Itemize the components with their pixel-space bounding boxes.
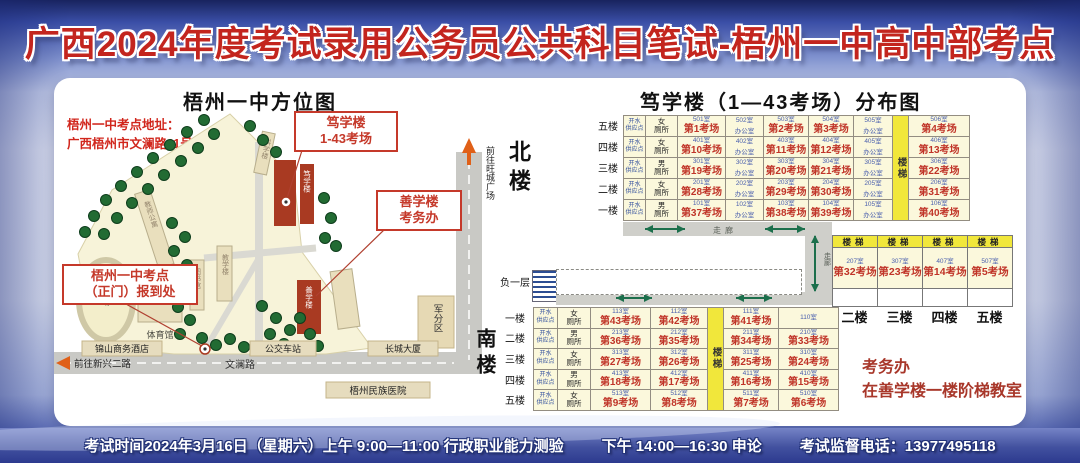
room-number: 513室 (612, 390, 629, 398)
poster: 广西2024年度考试录用公务员公共科目笔试-梧州一中高中部考点 梧州一中方位图 … (0, 0, 1080, 463)
water-line1: 开水 (625, 119, 643, 127)
water-supply-cell: 开水供应点 (624, 137, 645, 157)
floor-label: 一楼 (598, 199, 618, 220)
room-number: 503室 (777, 116, 794, 124)
water-line2: 供应点 (536, 380, 554, 388)
exam-room-label: 第6考场 (791, 398, 827, 410)
gym-label: 体育馆 (146, 329, 173, 340)
tree-icon (132, 167, 143, 178)
north-corridor: 走廊 (623, 222, 832, 236)
water-line1: 开水 (536, 310, 554, 318)
office-label: 办公室 (735, 209, 755, 219)
toilet-label: 厕所 (567, 338, 582, 346)
military-label: 军分区 (432, 304, 444, 333)
tree-icon (182, 127, 193, 138)
room-number: 310室 (800, 349, 817, 357)
middle-floor-labels: 二楼三楼四楼五楼 (832, 307, 1012, 326)
exam-room-label: 第4考场 (921, 124, 957, 136)
water-supply-label: 开水供应点 (536, 351, 554, 366)
exam-room-cell: 504室第3考场 (809, 116, 853, 136)
female-toilet-cell: 女厕所 (558, 390, 590, 410)
stairs-header: 楼梯 (833, 236, 877, 247)
exam-room-label: 第1考场 (684, 124, 720, 136)
toilet-label: 厕所 (654, 168, 669, 176)
floor-label: 二楼 (505, 328, 525, 349)
exam-room-cell: 501室第1考场 (678, 116, 725, 136)
exam-room-cell: 407室第14考场 (923, 248, 967, 288)
exam-room-cell: 212室第35考场 (651, 329, 707, 349)
male-toilet-cell: 男厕所 (558, 370, 590, 390)
office-label: 办公室 (735, 188, 755, 198)
exam-room-label: 第22考场 (918, 166, 959, 178)
exam-room-label: 第33考场 (788, 336, 829, 348)
floor-label: 一楼 (505, 307, 525, 328)
exam-room-cell: 403室第11考场 (764, 137, 808, 157)
exam-room-cell: 506室第4考场 (909, 116, 969, 136)
gate-callout-line1: 梧州一中考点 (68, 268, 192, 284)
exam-room-label: 第41考场 (730, 316, 771, 328)
room-number: 103室 (777, 200, 794, 208)
middle-floor-label: 三楼 (877, 307, 922, 326)
exam-room-label: 第21考场 (810, 166, 851, 178)
office-label: 办公室 (735, 146, 755, 156)
stairs-header: 楼梯 (923, 236, 967, 247)
exam-room-label: 第14考场 (923, 266, 966, 279)
room-number: 205室 (864, 180, 881, 188)
tree-icon (295, 313, 306, 324)
exam-room-label: 第16考场 (730, 377, 771, 389)
empty-cell (968, 289, 1012, 306)
tree-icon (271, 147, 282, 158)
kaowuban-note-line2: 在善学楼一楼阶梯教室 (862, 380, 1022, 404)
room-number: 403室 (777, 137, 794, 145)
water-supply-label: 开水供应点 (625, 140, 643, 155)
tree-icon (197, 333, 208, 344)
office-label: 办公室 (863, 167, 883, 177)
room-number: 113室 (612, 308, 629, 316)
water-supply-cell: 开水供应点 (534, 308, 557, 328)
room-number: 204室 (822, 179, 839, 187)
exam-room-cell: 412室第17考场 (651, 370, 707, 390)
exam-room-cell: 304室第21考场 (809, 158, 853, 178)
arrow-head (644, 294, 652, 302)
shanxue-callout: 善学楼 考务办 (376, 190, 462, 231)
duxue-callout: 笃学楼 1-43考场 (294, 111, 398, 152)
exam-room-cell: 312室第26考场 (651, 349, 707, 369)
water-line2: 供应点 (536, 359, 554, 367)
shanxue-building-label: 善学楼 (304, 285, 313, 310)
toilet-label: 厕所 (567, 380, 582, 388)
office-label: 办公室 (863, 209, 883, 219)
shanxue-callout-line1: 善学楼 (382, 194, 456, 210)
water-line2: 供应点 (536, 318, 554, 326)
exam-room-cell: 101室第37考场 (678, 200, 725, 220)
exam-room-cell: 401室第10考场 (678, 137, 725, 157)
exam-room-label: 第5考场 (971, 266, 1008, 279)
supervision-phone: 考试监督电话：13977495118 (800, 435, 996, 456)
water-line1: 开水 (625, 140, 643, 148)
content-card: 梧州一中方位图 梧州一中考点地址： 广西梧州市文澜路11号 运动场 教师公寓 (54, 78, 1026, 426)
tree-icon (320, 233, 331, 244)
room-number: 101室 (693, 200, 710, 208)
tree-icon (257, 301, 268, 312)
room-number: 305室 (864, 159, 881, 167)
office-cell: 302室办公室 (726, 158, 763, 178)
exam-room-cell: 406室第13考场 (909, 137, 969, 157)
arrow-head (811, 235, 819, 243)
exam-room-cell: 503室第2考场 (764, 116, 808, 136)
female-toilet-cell: 女厕所 (646, 179, 677, 199)
exam-room-label: 第25考场 (730, 357, 771, 369)
north-corridor-arrows: 走廊 (623, 222, 832, 236)
hospital-label: 梧州民族医院 (349, 385, 407, 397)
exam-room-cell: 111室第41考场 (724, 308, 778, 328)
water-line2: 供应点 (625, 126, 643, 134)
water-supply-cell: 开水供应点 (534, 390, 557, 410)
water-supply-cell: 开水供应点 (534, 349, 557, 369)
exam-room-label: 第3考场 (813, 124, 849, 136)
toilet-label: 厕所 (567, 318, 582, 326)
water-supply-label: 开水供应点 (625, 203, 643, 218)
tree-icon (101, 195, 112, 206)
exam-room-label: 第2考场 (768, 124, 804, 136)
exam-room-cell: 301室第19考场 (678, 158, 725, 178)
exam-room-label: 第28考场 (681, 187, 722, 199)
exam-room-label: 第12考场 (810, 145, 851, 157)
middle-floor-label: 四楼 (922, 307, 967, 326)
middle-floor-label: 五楼 (967, 307, 1012, 326)
to-xinxing-label: 前往新兴二路 (74, 358, 132, 370)
to-wangcheng-label: 前往旺城广场 (485, 145, 495, 201)
arrow-head (764, 294, 772, 302)
kaowuban-note-line1: 考务办 (862, 356, 1022, 380)
room-number: 311室 (743, 349, 760, 357)
tree-icon (176, 156, 187, 167)
exam-room-cell: 512室第8考场 (651, 390, 707, 410)
exam-room-cell: 307室第23考场 (878, 248, 922, 288)
arrow-head (677, 225, 685, 233)
hotel-label: 锦山商务酒店 (95, 343, 149, 354)
duxue-marker-dot (284, 200, 287, 203)
water-line1: 开水 (625, 182, 643, 190)
room-number: 110室 (800, 314, 817, 322)
water-line1: 开水 (625, 203, 643, 211)
room-number: 510室 (800, 390, 817, 398)
north-table: 楼梯开水供应点女厕所501室第1考场502室办公室503室第2考场504室第3考… (623, 115, 970, 221)
corridor-label: 走廊 (713, 225, 737, 235)
office-cell: 305室办公室 (854, 158, 892, 178)
exam-room-cell: 410室第15考场 (779, 370, 838, 390)
room-number: 401室 (693, 137, 710, 145)
floor-label: 四楼 (505, 369, 525, 390)
basement-stairs-icon (532, 270, 557, 302)
exam-room-cell: 510室第6考场 (779, 390, 838, 410)
water-supply-cell: 开水供应点 (624, 116, 645, 136)
water-line2: 供应点 (625, 168, 643, 176)
office-cell: 105室办公室 (854, 200, 892, 220)
office-cell: 205室办公室 (854, 179, 892, 199)
room-number: 504室 (822, 116, 839, 124)
room-number: 512室 (670, 390, 687, 398)
tree-icon (319, 193, 330, 204)
water-supply-label: 开水供应点 (536, 393, 554, 408)
duxue-callout-line2: 1-43考场 (300, 131, 392, 147)
tree-icon (209, 129, 220, 140)
tree-icon (331, 241, 342, 252)
room-number: 111室 (743, 308, 759, 316)
tree-icon (169, 246, 180, 257)
south-building-label: 南楼 (470, 328, 499, 380)
office-cell: 102室办公室 (726, 200, 763, 220)
office-label: 办公室 (863, 188, 883, 198)
exam-room-cell: 104室第39考场 (809, 200, 853, 220)
arrow-head (765, 225, 773, 233)
office-cell: 502室办公室 (726, 116, 763, 136)
room-number: 301室 (693, 158, 710, 166)
tree-icon (271, 313, 282, 324)
stairs-header: 楼梯 (968, 236, 1012, 247)
arrow-head (645, 225, 653, 233)
male-toilet-cell: 男厕所 (646, 200, 677, 220)
exam-room-cell: 306室第22考场 (909, 158, 969, 178)
room-number: 312室 (670, 349, 687, 357)
tree-icon (180, 232, 191, 243)
middle-table: 楼梯207室第32考场楼梯307室第23考场楼梯407室第14考场楼梯507室第… (832, 235, 1013, 307)
gate-marker-dot (203, 347, 206, 350)
water-line1: 开水 (536, 372, 554, 380)
room-number: 406室 (930, 137, 947, 145)
room-number: 306室 (930, 158, 947, 166)
exam-room-label: 第18考场 (600, 377, 641, 389)
arrow-head (797, 225, 805, 233)
room-number: 105室 (864, 201, 881, 209)
exam-room-cell: 513室第9考场 (591, 390, 650, 410)
exam-room-label: 第37考场 (681, 208, 722, 220)
exam-room-label: 第30考场 (810, 187, 851, 199)
exam-room-label: 第19考场 (681, 166, 722, 178)
bus-station-label: 公交车站 (265, 343, 301, 354)
tree-icon (239, 342, 250, 353)
toilet-label: 厕所 (654, 126, 669, 134)
room-number: 313室 (612, 349, 629, 357)
campus-map: 运动场 教师公寓 科学楼 教学楼 图书馆 体育馆 笃学楼 善学楼 (54, 98, 499, 426)
tree-icon (99, 229, 110, 240)
exam-time-info: 考试时间2024年3月16日（星期六）上午 9:00—11:00 行政职业能力测… (84, 435, 563, 456)
footer-bar: 考试时间2024年3月16日（星期六）上午 9:00—11:00 行政职业能力测… (0, 428, 1080, 463)
female-toilet-cell: 女厕所 (558, 308, 590, 328)
basement-hall-outline (556, 269, 802, 295)
stairs-column: 楼梯 (893, 116, 908, 220)
tree-icon (265, 329, 276, 340)
male-toilet-cell: 男厕所 (558, 329, 590, 349)
exam-room-label: 第39考场 (810, 208, 851, 220)
exam-room-label: 第32考场 (833, 266, 876, 279)
exam-room-label: 第34考场 (730, 336, 771, 348)
banner: 广西2024年度考试录用公务员公共科目笔试-梧州一中高中部考点 (0, 16, 1080, 67)
floor-label: 三楼 (505, 348, 525, 369)
toilet-label: 厕所 (567, 359, 582, 367)
room-number: 201室 (693, 179, 710, 187)
water-supply-label: 开水供应点 (625, 119, 643, 134)
water-supply-cell: 开水供应点 (534, 329, 557, 349)
office-label: 办公室 (863, 125, 883, 135)
exam-room-label: 第9考场 (603, 398, 639, 410)
basement-label: 负一层 (500, 274, 530, 289)
exam-room-cell: 206室第31考场 (909, 179, 969, 199)
exam-room-cell: 203室第29考场 (764, 179, 808, 199)
exam-room-label: 第15考场 (788, 377, 829, 389)
arrow-head (811, 284, 819, 292)
stairs-header: 楼梯 (878, 236, 922, 247)
room-number: 302室 (736, 159, 753, 167)
tower-label: 长城大厦 (385, 343, 421, 354)
exam-room-label: 第10考场 (681, 145, 722, 157)
wenlan-road-label: 文澜路 (225, 358, 255, 371)
tree-icon (165, 140, 176, 151)
exam-room-label: 第27考场 (600, 357, 641, 369)
tree-icon (185, 315, 196, 326)
water-line2: 供应点 (536, 400, 554, 408)
exam-room-cell: 207室第32考场 (833, 248, 877, 288)
water-supply-cell: 开水供应点 (624, 200, 645, 220)
tree-icon (89, 211, 100, 222)
room-number: 112室 (671, 308, 688, 316)
room-number: 507室 (981, 258, 998, 266)
exam-room-label: 第42考场 (658, 316, 699, 328)
water-line2: 供应点 (625, 147, 643, 155)
diagram-title: 笃学楼（1—43考场）分布图 (640, 86, 921, 115)
room-number: 402室 (736, 138, 753, 146)
female-toilet-cell: 女厕所 (646, 137, 677, 157)
exam-room-cell: 303室第20考场 (764, 158, 808, 178)
room-number: 404室 (822, 137, 839, 145)
room-number: 307室 (891, 258, 908, 266)
office-label: 办公室 (735, 125, 755, 135)
exam-room-label: 第36考场 (600, 336, 641, 348)
water-supply-cell: 开水供应点 (624, 179, 645, 199)
exam-room-cell: 213室第36考场 (591, 329, 650, 349)
exam-room-cell: 404室第12考场 (809, 137, 853, 157)
office-cell: 202室办公室 (726, 179, 763, 199)
toilet-label: 厕所 (654, 210, 669, 218)
toilet-label: 厕所 (654, 189, 669, 197)
tree-icon (112, 213, 123, 224)
gate-callout-line2: （正门）报到处 (68, 284, 192, 300)
office-cell: 405室办公室 (854, 137, 892, 157)
arrow-head (616, 294, 624, 302)
room-number: 405室 (864, 138, 881, 146)
room-number: 303室 (777, 158, 794, 166)
tree-icon (127, 198, 138, 209)
exam-room-cell: 103室第38考场 (764, 200, 808, 220)
exam-room-label: 第29考场 (765, 187, 806, 199)
exam-room-cell: 211室第34考场 (724, 329, 778, 349)
room-number: 203室 (777, 179, 794, 187)
exam-room-cell: 110室 (779, 308, 838, 328)
exam-room-cell: 511室第7考场 (724, 390, 778, 410)
exam-room-label: 第7考场 (733, 398, 769, 410)
poster-title: 广西2024年度考试录用公务员公共科目笔试-梧州一中高中部考点 (25, 25, 1056, 64)
empty-cell (923, 289, 967, 306)
floor-label: 二楼 (598, 178, 618, 199)
exam-room-label: 第31考场 (918, 187, 959, 199)
floor-label: 五楼 (505, 389, 525, 410)
water-supply-label: 开水供应点 (536, 372, 554, 387)
floor-label: 三楼 (598, 157, 618, 178)
exam-room-cell: 507室第5考场 (968, 248, 1012, 288)
room-number: 505室 (864, 117, 881, 125)
exam-room-label: 第17考场 (658, 377, 699, 389)
water-line1: 开水 (536, 351, 554, 359)
water-supply-label: 开水供应点 (625, 161, 643, 176)
water-supply-label: 开水供应点 (536, 310, 554, 325)
shanxue-callout-line2: 考务办 (382, 210, 456, 226)
tree-icon (285, 325, 296, 336)
room-number: 102室 (736, 201, 753, 209)
water-line2: 供应点 (625, 189, 643, 197)
exam-room-label: 第20考场 (765, 166, 806, 178)
empty-cell (833, 289, 877, 306)
male-toilet-cell: 男厕所 (646, 158, 677, 178)
exam-room-cell: 311室第25考场 (724, 349, 778, 369)
water-supply-cell: 开水供应点 (534, 370, 557, 390)
arrow-head (736, 294, 744, 302)
floor-label: 五楼 (598, 115, 618, 136)
exam-room-label: 第26考场 (658, 357, 699, 369)
tree-icon (225, 334, 236, 345)
tree-icon (305, 329, 316, 340)
exam-room-label: 第23考场 (878, 266, 921, 279)
exam-room-cell: 413室第18考场 (591, 370, 650, 390)
kaowuban-note: 考务办 在善学楼一楼阶梯教室 (862, 356, 1022, 404)
south-table: 楼梯开水供应点女厕所113室第43考场112室第42考场111室第41考场110… (533, 307, 839, 411)
exam-room-label: 第43考场 (600, 316, 641, 328)
duxue-building-label: 笃学楼 (302, 169, 311, 194)
exam-room-label: 第40考场 (918, 208, 959, 220)
exam-room-cell: 210室第33考场 (779, 329, 838, 349)
floor-label: 四楼 (598, 136, 618, 157)
north-floor-labels: 五楼四楼三楼二楼一楼 (598, 115, 618, 220)
exam-room-cell: 113室第43考场 (591, 308, 650, 328)
tree-icon (143, 184, 154, 195)
room-number: 202室 (736, 180, 753, 188)
tree-icon (245, 121, 256, 132)
water-line2: 供应点 (536, 338, 554, 346)
exam-room-label: 第35考场 (658, 336, 699, 348)
exam-room-label: 第38考场 (765, 208, 806, 220)
tree-icon (211, 340, 222, 351)
empty-cell (878, 289, 922, 306)
tree-icon (326, 213, 337, 224)
up-arrow-stem (467, 153, 471, 165)
exam-room-label: 第8考场 (661, 398, 697, 410)
room-number: 511室 (743, 390, 760, 398)
exam-room-cell: 411室第16考场 (724, 370, 778, 390)
exam-room-cell: 204室第30考场 (809, 179, 853, 199)
exam-room-label: 第11考场 (766, 145, 807, 157)
gate-callout: 梧州一中考点 （正门）报到处 (62, 264, 198, 305)
office-label: 办公室 (735, 167, 755, 177)
exam-room-cell: 201室第28考场 (678, 179, 725, 199)
exam-room-cell: 112室第42考场 (651, 308, 707, 328)
exam-afternoon-info: 下午 14:00—16:30 申论 (602, 435, 762, 456)
tree-icon (159, 170, 170, 181)
office-cell: 402室办公室 (726, 137, 763, 157)
room-number: 207室 (846, 258, 863, 266)
water-supply-label: 开水供应点 (536, 331, 554, 346)
room-number: 206室 (930, 179, 947, 187)
office-cell: 505室办公室 (854, 116, 892, 136)
